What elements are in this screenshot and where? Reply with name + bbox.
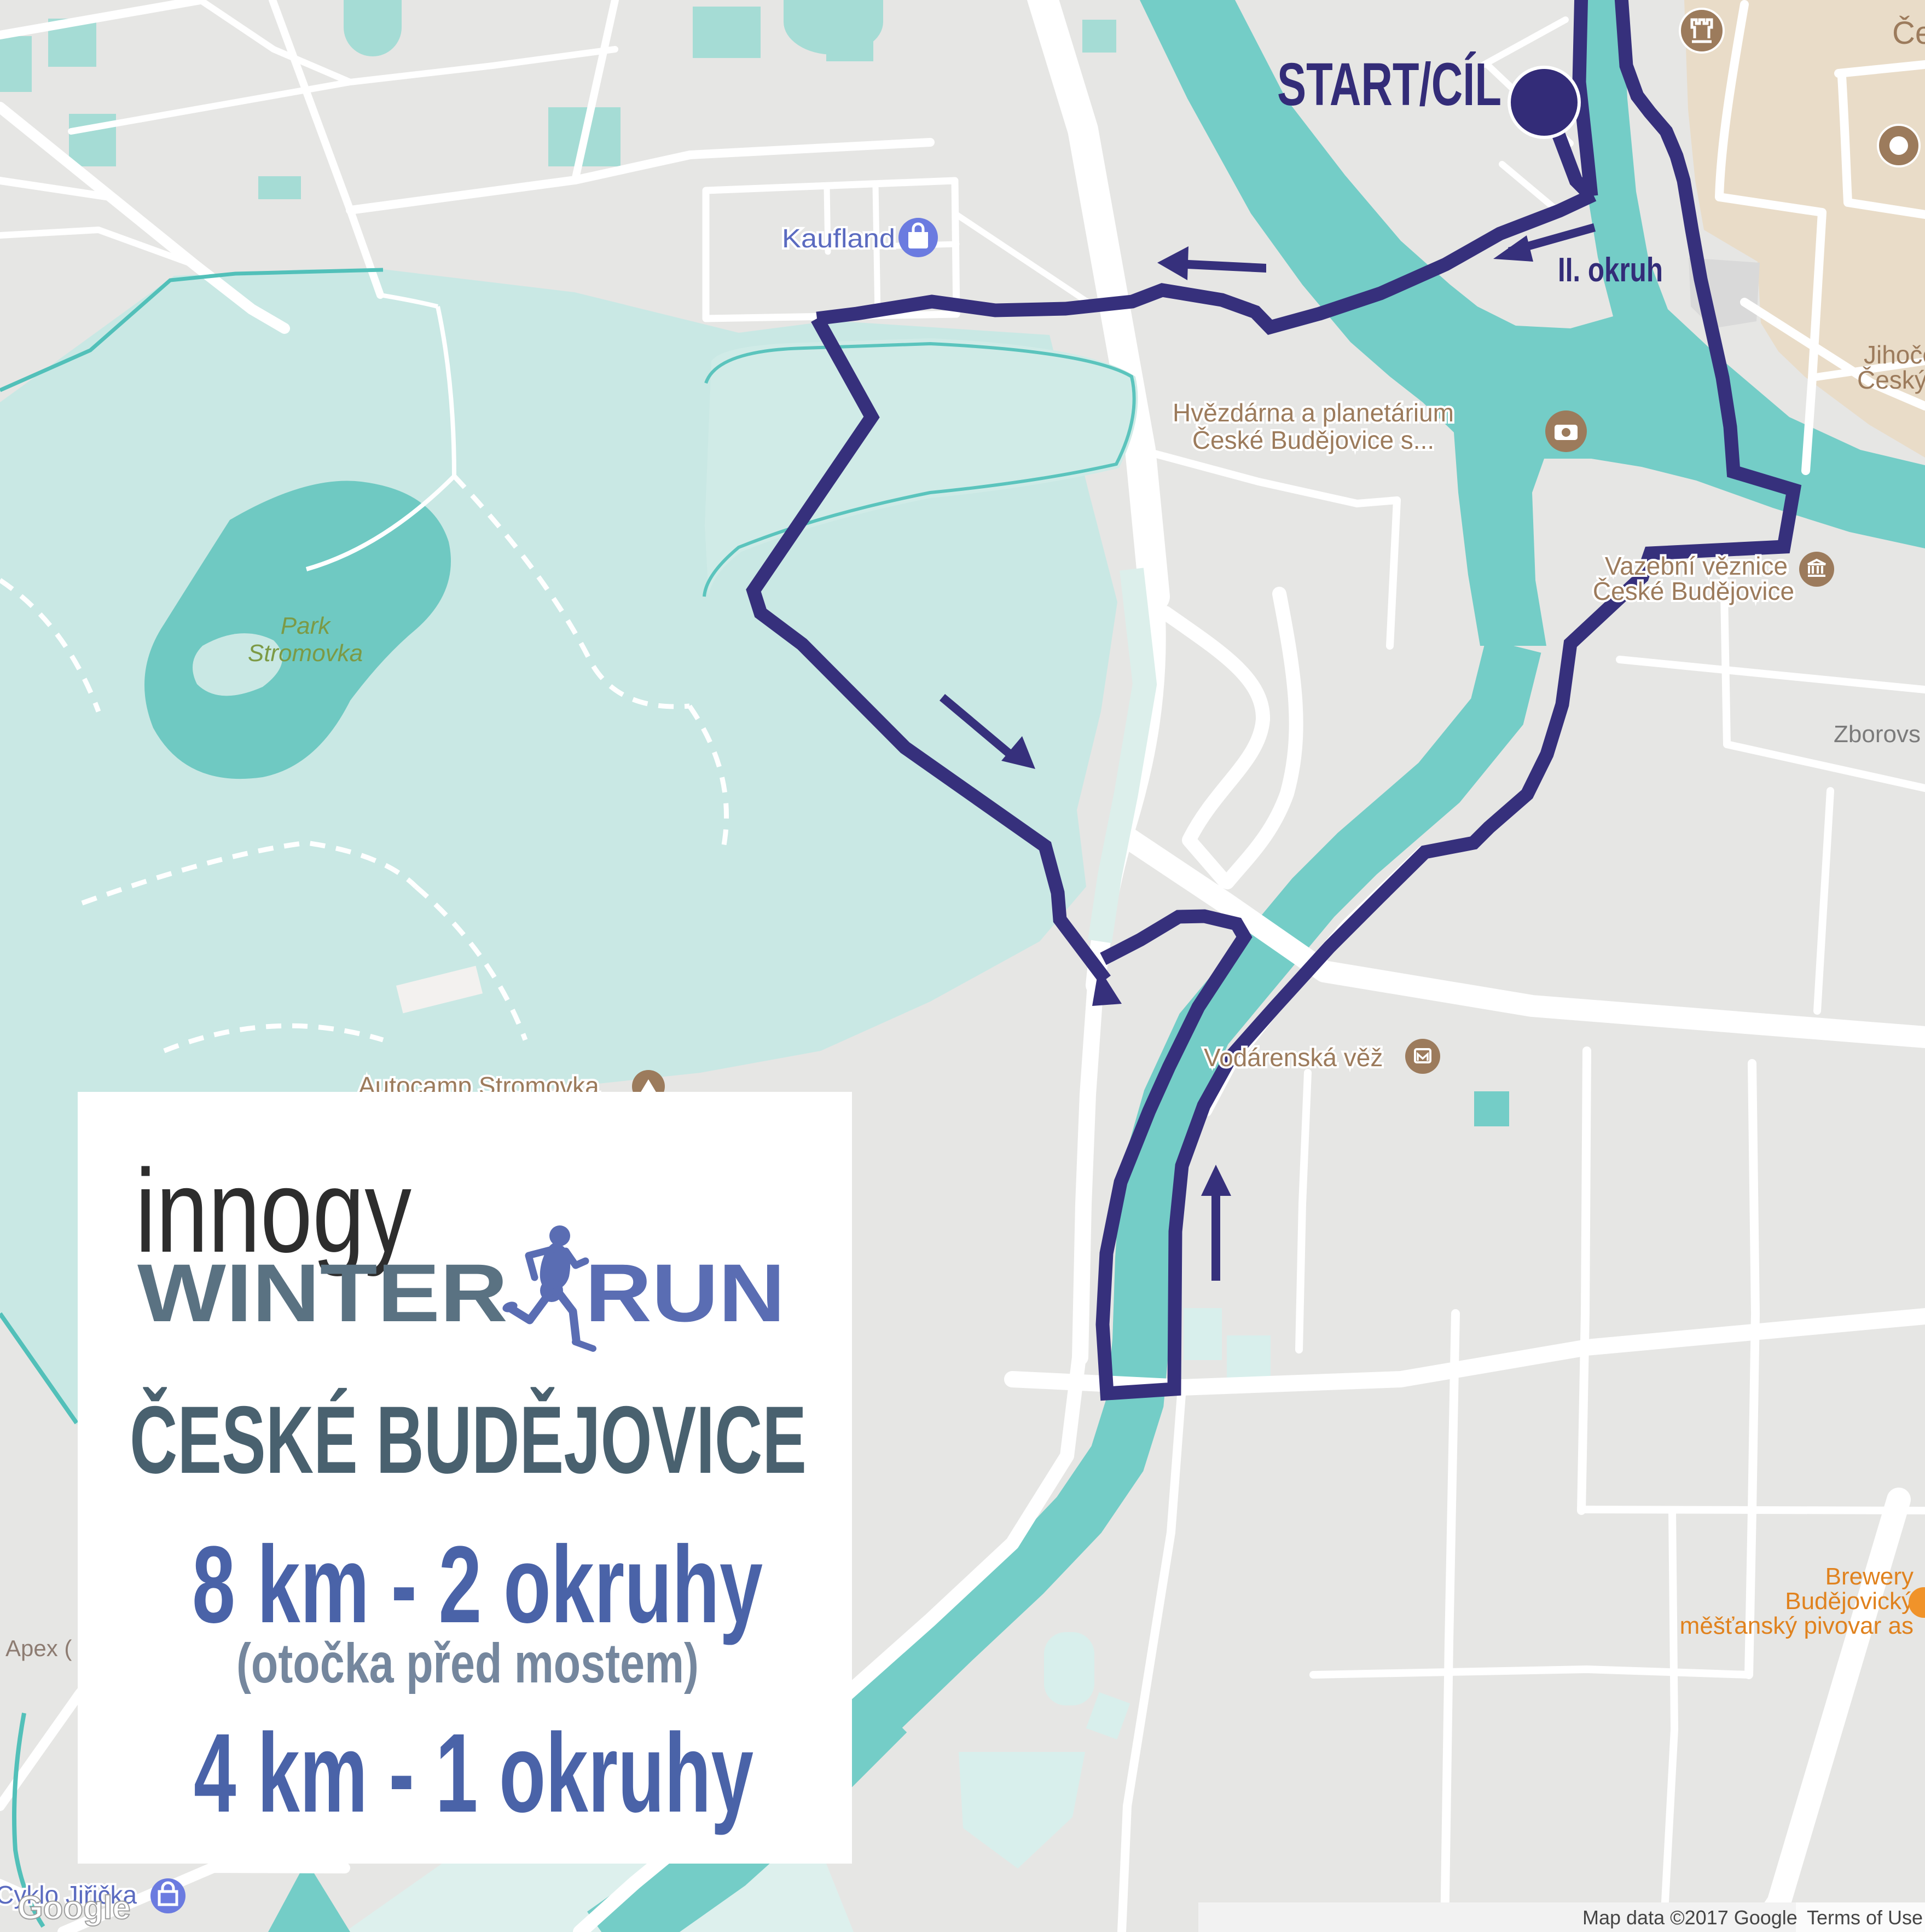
svg-text:Stromovka: Stromovka [248, 640, 363, 667]
svg-text:Google: Google [18, 1889, 131, 1926]
svg-text:Apex (: Apex ( [5, 1635, 72, 1661]
svg-text:II. okruh: II. okruh [1558, 251, 1663, 289]
svg-text:Českých: Českých [1857, 366, 1925, 394]
svg-text:České Budějovice: České Budějovice [1593, 577, 1794, 605]
svg-text:Hvězdárna a planetárium: Hvězdárna a planetárium [1173, 398, 1454, 427]
svg-text:Brewery: Brewery [1825, 1563, 1914, 1590]
svg-text:měšťanský pivovar as: měšťanský pivovar as [1680, 1612, 1914, 1639]
svg-text:Zborovs: Zborovs [1834, 721, 1921, 748]
svg-text:RUN: RUN [585, 1247, 785, 1339]
svg-text:Budějovický: Budějovický [1785, 1588, 1914, 1615]
svg-text:4 km - 1 okruhy: 4 km - 1 okruhy [194, 1710, 753, 1836]
svg-text:WINTER: WINTER [137, 1247, 508, 1339]
svg-text:České Budějovice s...: České Budějovice s... [1192, 426, 1434, 454]
svg-text:Terms of Use: Terms of Use [1807, 1906, 1923, 1929]
svg-text:START/CÍL: START/CÍL [1277, 51, 1501, 118]
svg-text:Kaufland: Kaufland [782, 224, 895, 253]
svg-text:Če: Če [1892, 15, 1925, 51]
svg-text:Jihočes: Jihočes [1864, 340, 1925, 369]
svg-text:Vodárenská věž: Vodárenská věž [1204, 1043, 1383, 1072]
svg-text:Vazební věznice: Vazební věznice [1605, 552, 1788, 580]
svg-text:8 km - 2 okruhy: 8 km - 2 okruhy [192, 1524, 763, 1646]
svg-text:Map data ©2017 Google: Map data ©2017 Google [1582, 1906, 1798, 1929]
svg-text:ČESKÉ BUDĚJOVICE: ČESKÉ BUDĚJOVICE [130, 1387, 807, 1494]
svg-text:(otočka před mostem): (otočka před mostem) [236, 1632, 699, 1694]
svg-text:Park: Park [281, 612, 331, 639]
